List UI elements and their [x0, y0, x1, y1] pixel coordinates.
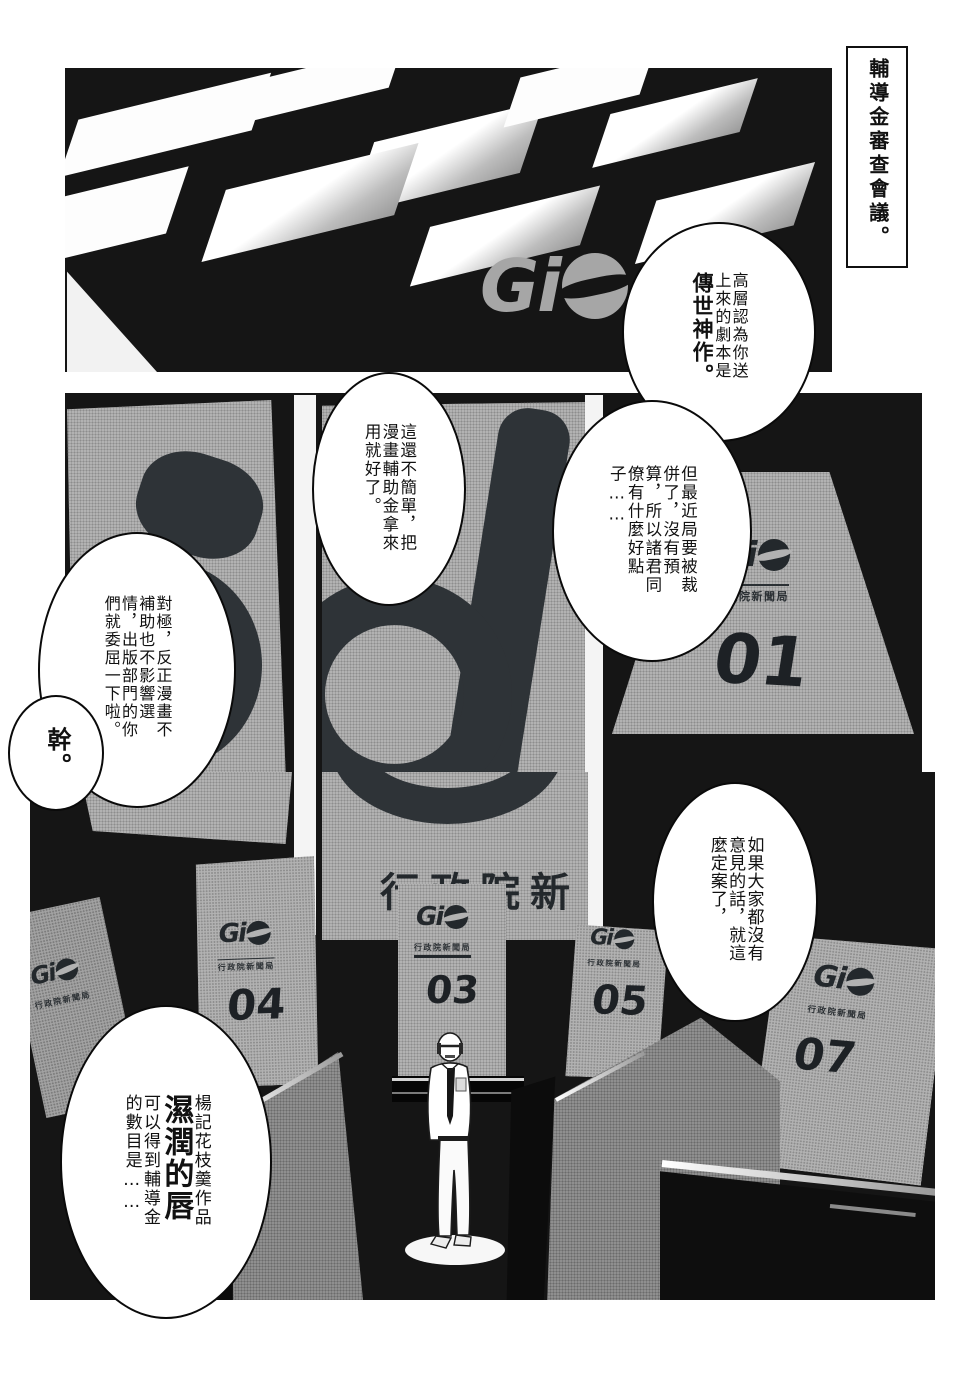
- gio-o-ball-icon: [54, 956, 80, 982]
- bubble-simple-idea: 這還不簡單，把漫畫輔助金拿來用就好了。: [312, 372, 466, 606]
- bubble-decision: 如果大家都沒有意見的話，就這麼定案了，: [652, 782, 818, 1022]
- agency-text: 行政院新聞局: [587, 957, 641, 970]
- gio-o-ball-icon: [444, 905, 468, 929]
- gio-logo: Gi: [218, 919, 271, 947]
- standing-man: [398, 1020, 513, 1270]
- bubble-budget-cut: 但最近局要被裁併了，沒有預算，所以諸君同僚有什麼好點子……: [552, 400, 752, 662]
- gio-swoosh-icon: [442, 911, 471, 923]
- gio-o-ball-icon: [562, 253, 628, 319]
- skylight: [65, 166, 189, 264]
- bubble-text: 楊記花枝羹作品: [191, 1094, 211, 1227]
- man-hair: [459, 1043, 463, 1054]
- gio-logo: Gi: [480, 250, 628, 322]
- gio-swoosh-icon: [612, 935, 636, 944]
- gio-letters: Gi: [480, 250, 560, 322]
- bubble-text: 如果大家都沒有意見的話，就這麼定案了，: [707, 836, 764, 962]
- gio-logo: Gi: [416, 904, 468, 930]
- giant-logo-fragment: [330, 772, 565, 824]
- man-hair: [437, 1043, 441, 1054]
- man-belt: [438, 1136, 469, 1141]
- skylight: [253, 68, 404, 121]
- bubble-text-emphasis: 濕潤的唇: [158, 1094, 193, 1222]
- gio-logo: Gi: [812, 961, 876, 998]
- bubble-text: 這還不簡單，把漫畫輔助金拿來用就好了。: [362, 423, 417, 553]
- gio-swoosh-icon: [245, 927, 274, 940]
- gio-swoosh-icon: [844, 977, 877, 987]
- bubble-text: 對極，反正漫畫不補助也不影響選情，出版部門的你們就委屈一下啦。: [102, 595, 173, 739]
- gio-swoosh-icon: [755, 547, 793, 563]
- skylight: [201, 143, 418, 262]
- podium-number: 01: [708, 620, 814, 704]
- gio-swoosh-icon: [556, 270, 634, 303]
- gio-o-ball-icon: [613, 929, 634, 950]
- bubble-text: 幹。: [43, 727, 71, 779]
- bubble-text: 高層認為你送上來的劇本是: [712, 272, 748, 380]
- bubble-award: 楊記花枝羹作品濕潤的唇可以得到輔導金的數目是……: [60, 1005, 272, 1319]
- skylight: [65, 73, 271, 178]
- agency-text: 行政院新聞局: [807, 1003, 868, 1022]
- bubble-text: 但最近局要被裁併了，沒有預算，所以諸君同僚有什麼好點子……: [607, 465, 697, 595]
- man-trousers: [438, 1138, 470, 1236]
- podium-number: 07: [789, 1029, 860, 1085]
- gio-letters: Gi: [30, 960, 57, 988]
- podium-number: 03: [424, 968, 482, 1012]
- gio-letters: Gi: [218, 920, 245, 947]
- man-shoe: [454, 1235, 471, 1246]
- lit-wall-corner: [67, 258, 157, 372]
- gio-logo: Gi: [590, 927, 634, 951]
- man-badge: [456, 1078, 466, 1091]
- agency-text: 行政院新聞局: [414, 942, 471, 958]
- podium-number: 05: [589, 977, 651, 1025]
- gio-o-ball-icon: [246, 920, 271, 945]
- wall-pillar: [294, 395, 316, 772]
- agency-text: 行政院新聞局: [34, 989, 92, 1012]
- man-mustache: [445, 1055, 455, 1058]
- caption-box: 輔導金審查會議。: [846, 46, 908, 268]
- bubble-curse: 幹。: [8, 695, 104, 811]
- gio-o-ball-icon: [758, 539, 790, 571]
- manga-page: Gi 輔導金審查會議。 Gi: [0, 0, 971, 1400]
- bubble-text: 可以得到輔導金的數目是……: [122, 1094, 160, 1227]
- podium-number: 04: [225, 979, 287, 1030]
- gio-letters: Gi: [812, 961, 846, 995]
- bubble-text-emphasis: 傳世神作。: [690, 272, 714, 387]
- gio-logo: Gi: [30, 955, 80, 988]
- agency-text: 行政院新聞局: [218, 957, 275, 973]
- gio-swoosh-icon: [54, 962, 80, 978]
- gio-letters: Gi: [416, 904, 442, 930]
- gio-o-ball-icon: [845, 966, 876, 997]
- caption-text: 輔導金審查會議。: [866, 58, 888, 250]
- gio-letters: Gi: [590, 927, 612, 950]
